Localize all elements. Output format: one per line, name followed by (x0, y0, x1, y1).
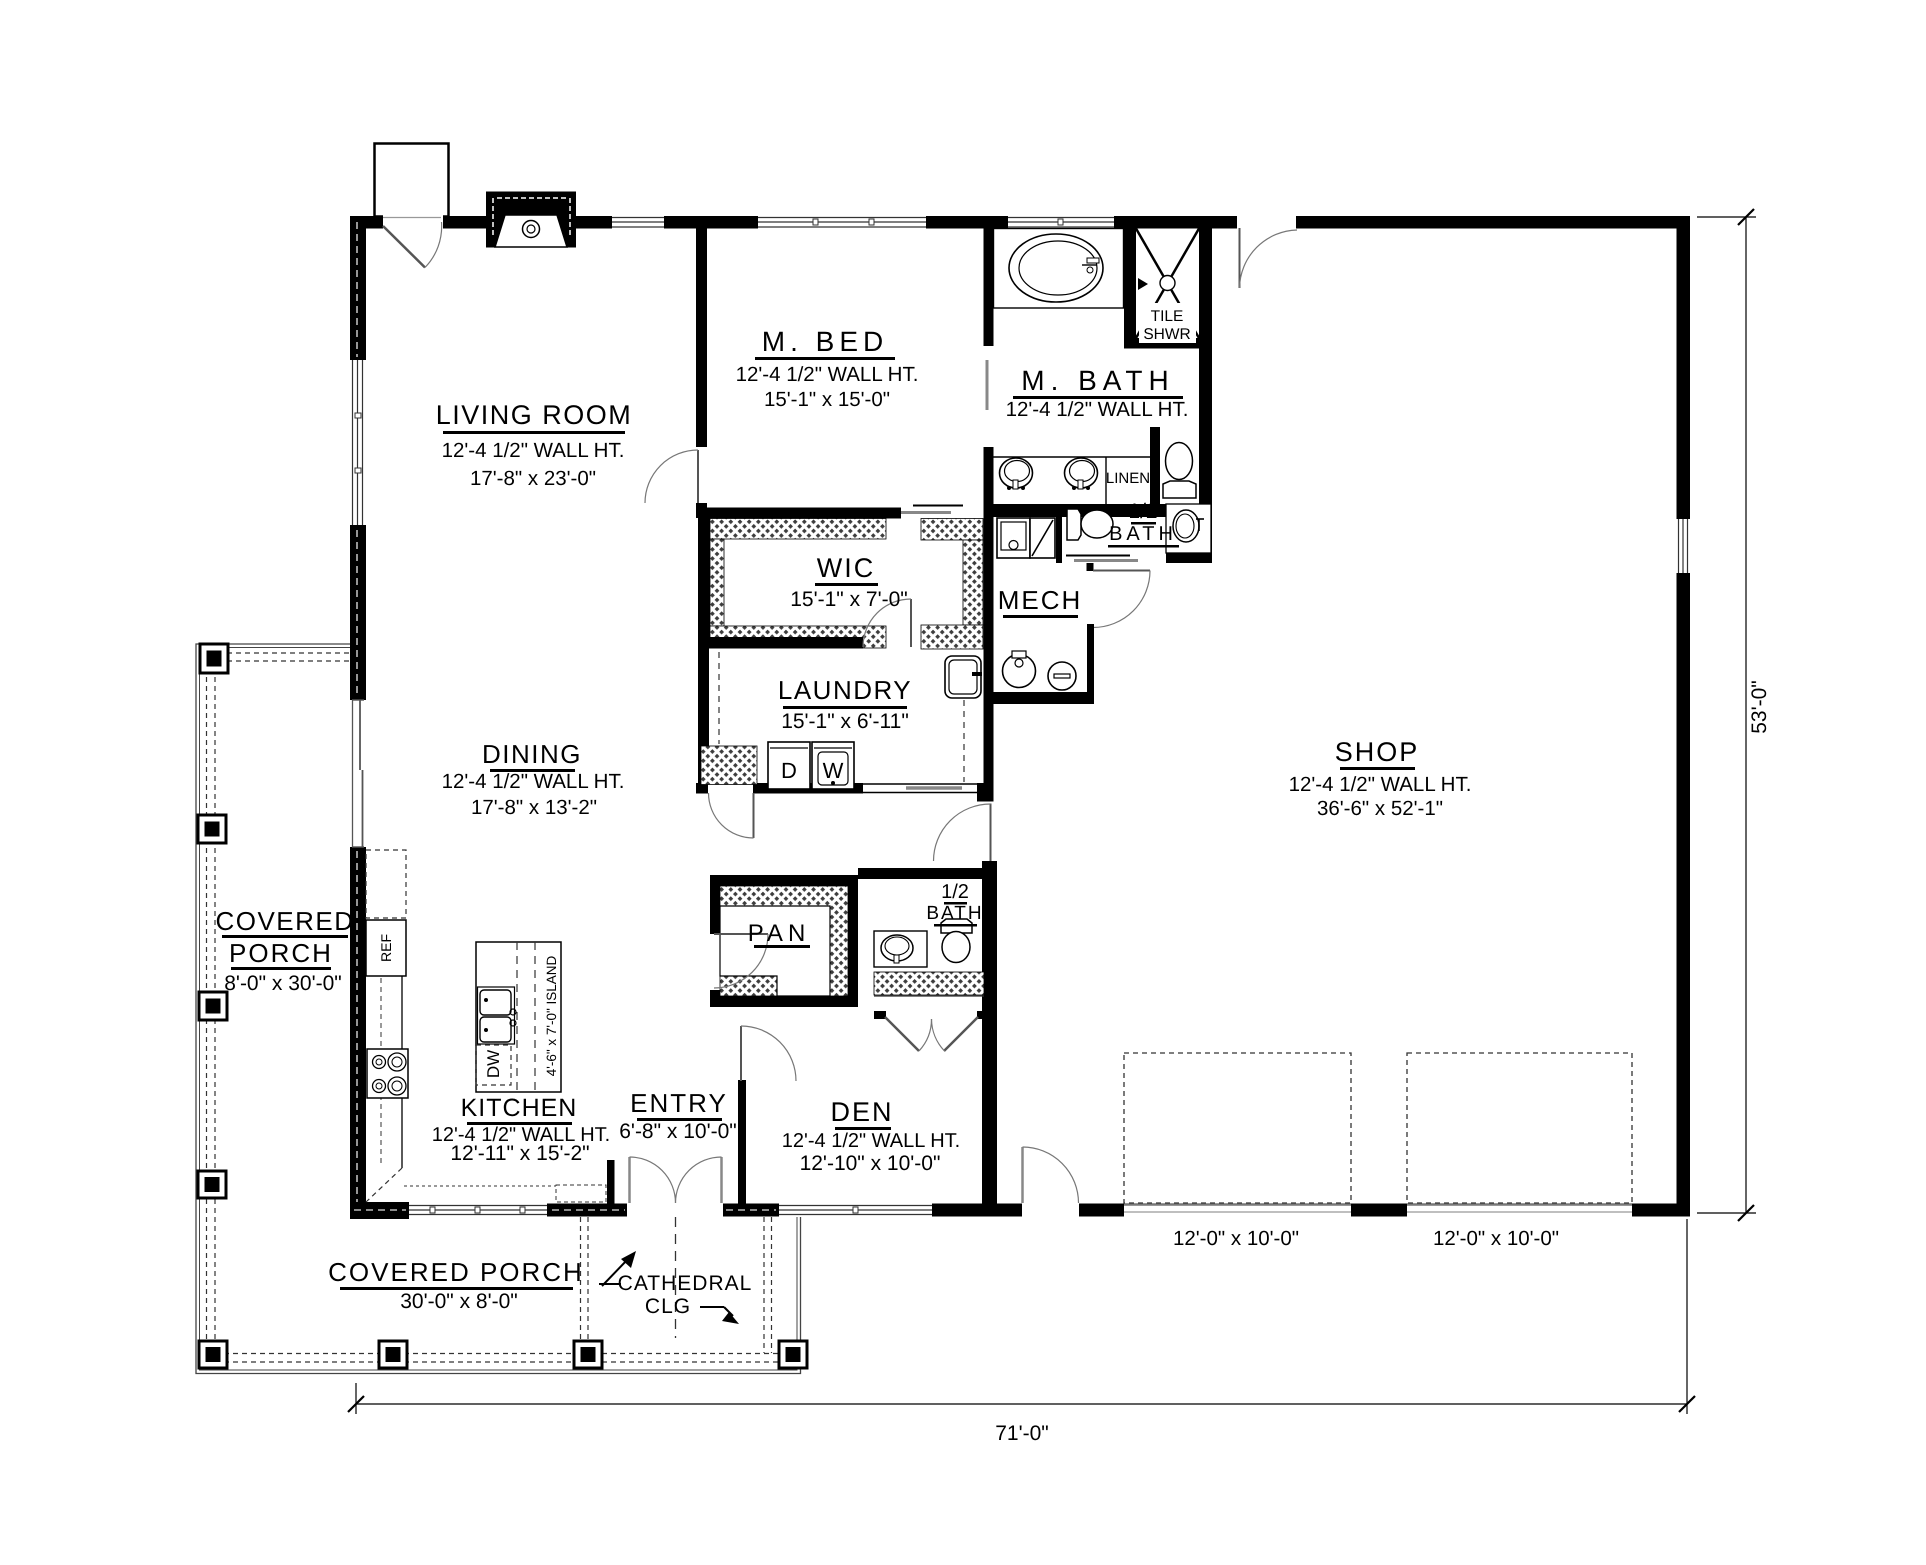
svg-text:COVERED PORCH: COVERED PORCH (328, 1257, 584, 1287)
svg-text:1/2: 1/2 (1128, 500, 1157, 523)
svg-text:12'-4 1/2" WALL HT.: 12'-4 1/2" WALL HT. (1289, 773, 1472, 796)
svg-text:LINEN: LINEN (1106, 470, 1150, 487)
svg-text:12'-0" x 10'-0": 12'-0" x 10'-0" (1433, 1227, 1559, 1250)
svg-text:SHWR: SHWR (1143, 326, 1190, 343)
svg-text:36'-6" x 52'-1": 36'-6" x 52'-1" (1317, 797, 1443, 820)
svg-text:WIC: WIC (817, 553, 875, 583)
svg-text:53'-0": 53'-0" (1748, 680, 1771, 734)
svg-text:REF: REF (378, 934, 394, 962)
svg-text:COVERED: COVERED (215, 906, 354, 936)
svg-text:ENTRY: ENTRY (630, 1088, 728, 1118)
svg-text:DW: DW (484, 1050, 503, 1078)
svg-text:12'-4 1/2" WALL HT.: 12'-4 1/2" WALL HT. (1006, 398, 1189, 421)
svg-text:30'-0" x 8'-0": 30'-0" x 8'-0" (400, 1290, 517, 1313)
svg-text:PORCH: PORCH (229, 938, 333, 968)
svg-text:LIVING ROOM: LIVING ROOM (436, 400, 633, 430)
svg-text:17'-8" x 13'-2": 17'-8" x 13'-2" (471, 796, 597, 819)
svg-text:D: D (781, 758, 797, 783)
svg-text:15'-1" x 7'-0": 15'-1" x 7'-0" (790, 588, 907, 611)
svg-text:DEN: DEN (830, 1097, 893, 1127)
svg-text:6'-8" x 10'-0": 6'-8" x 10'-0" (619, 1120, 736, 1143)
svg-text:12'-4 1/2" WALL HT.: 12'-4 1/2" WALL HT. (782, 1130, 960, 1152)
svg-text:15'-1" x 15'-0": 15'-1" x 15'-0" (764, 388, 890, 411)
svg-text:1/2: 1/2 (941, 881, 969, 903)
svg-text:M. BATH: M. BATH (1021, 365, 1174, 396)
svg-text:15'-1" x 6'-11": 15'-1" x 6'-11" (781, 710, 909, 733)
svg-text:17'-8" x 23'-0": 17'-8" x 23'-0" (470, 467, 596, 490)
svg-text:8'-0" x 30'-0": 8'-0" x 30'-0" (224, 972, 341, 995)
svg-text:DINING: DINING (482, 739, 582, 769)
svg-text:M. BED: M. BED (762, 326, 888, 357)
svg-text:BATH: BATH (1109, 523, 1177, 545)
svg-text:SHOP: SHOP (1335, 737, 1420, 767)
svg-text:12'-4 1/2" WALL HT.: 12'-4 1/2" WALL HT. (736, 363, 919, 386)
svg-text:12'-0" x 10'-0": 12'-0" x 10'-0" (1173, 1227, 1299, 1250)
svg-text:71'-0": 71'-0" (995, 1422, 1049, 1445)
svg-text:TILE: TILE (1151, 308, 1184, 325)
svg-text:KITCHEN: KITCHEN (461, 1094, 578, 1122)
svg-text:W: W (823, 758, 844, 783)
svg-text:12'-4 1/2" WALL HT.: 12'-4 1/2" WALL HT. (442, 770, 625, 793)
svg-text:12'-11" x 15'-2": 12'-11" x 15'-2" (450, 1142, 589, 1165)
svg-text:4'-6" x 7'-0" ISLAND: 4'-6" x 7'-0" ISLAND (544, 955, 559, 1076)
svg-text:MECH: MECH (998, 585, 1083, 615)
svg-text:PAN: PAN (748, 920, 811, 947)
svg-text:CATHEDRAL: CATHEDRAL (618, 1272, 753, 1295)
svg-text:LAUNDRY: LAUNDRY (778, 675, 912, 705)
svg-text:CLG: CLG (645, 1295, 691, 1318)
svg-text:BATH: BATH (926, 903, 983, 924)
svg-text:12'-4 1/2" WALL HT.: 12'-4 1/2" WALL HT. (442, 439, 625, 462)
svg-text:12'-10" x 10'-0": 12'-10" x 10'-0" (800, 1152, 941, 1175)
